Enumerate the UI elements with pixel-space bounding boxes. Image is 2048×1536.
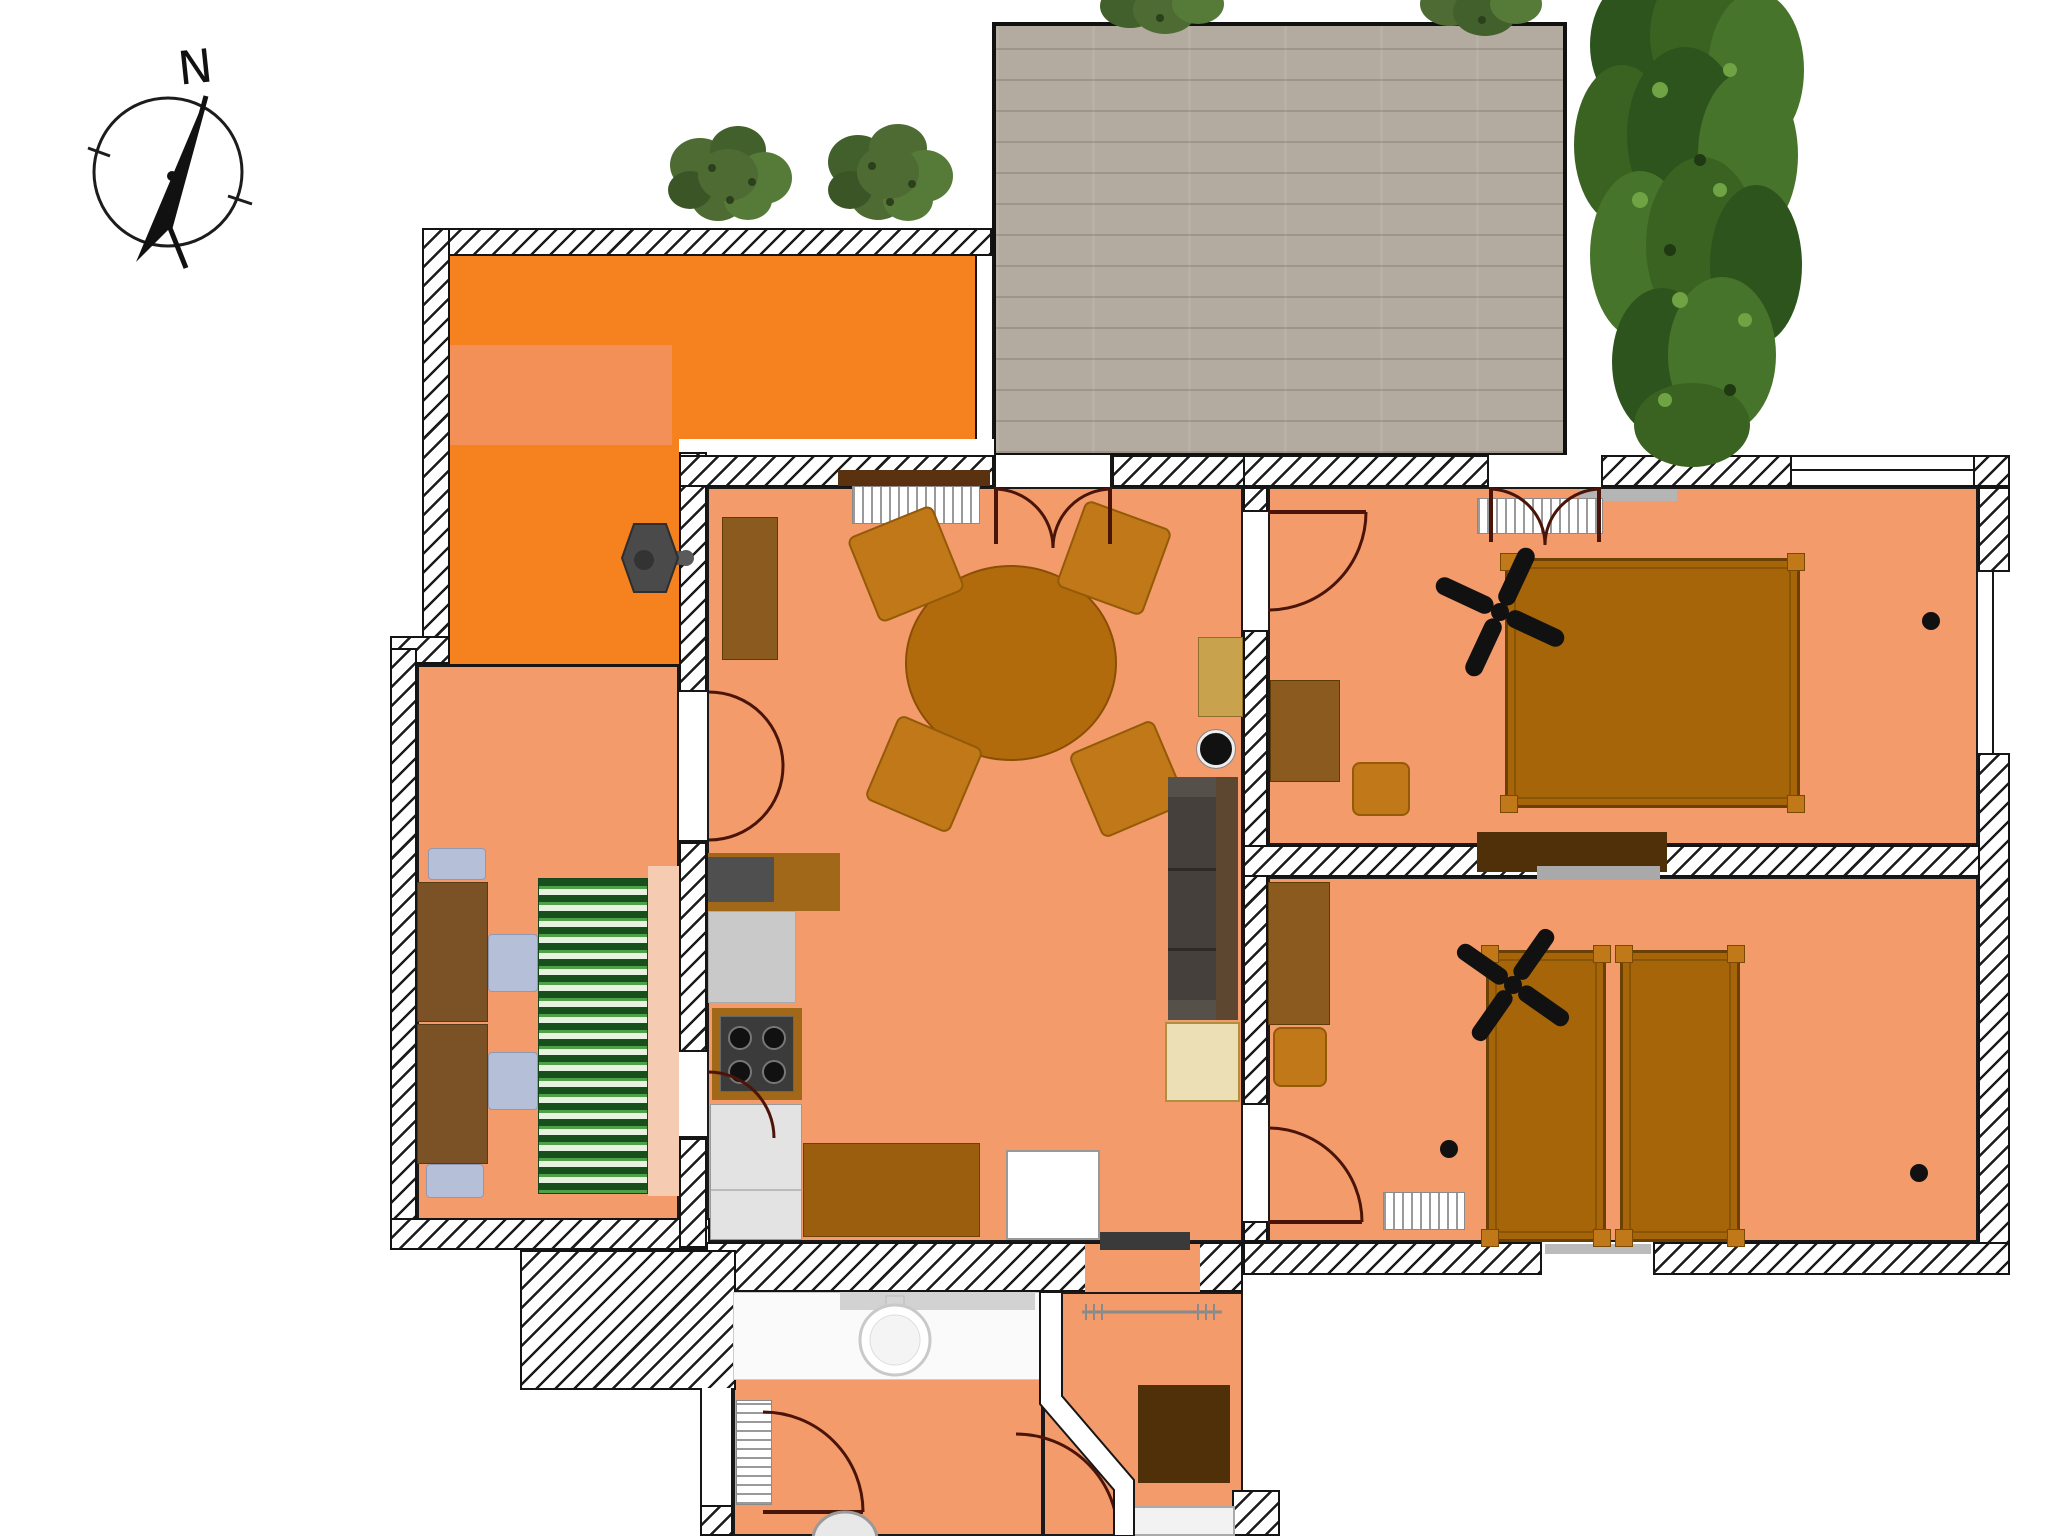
annex-floor-light-patch <box>450 345 672 445</box>
top-wall-window <box>1790 457 1975 485</box>
sofa-back-strip <box>1216 777 1238 1020</box>
compass-rose <box>88 96 252 268</box>
bed-post <box>1787 553 1805 571</box>
living-west-wall-mid <box>679 842 707 1052</box>
living-tall-cabinet <box>722 517 778 660</box>
sideboard-beige <box>1165 1022 1240 1102</box>
annex-top-wall <box>422 228 992 256</box>
sofa-cushion-line2 <box>1168 948 1216 951</box>
sofa-body <box>1168 777 1216 1020</box>
window-mullion <box>1792 469 1973 471</box>
bedroom2-desk <box>1268 882 1330 1025</box>
veranda-living-door-opening <box>679 690 707 842</box>
round-speaker-object <box>1197 730 1235 768</box>
floor-plan-canvas: N <box>0 0 2048 1536</box>
radiator-bathroom <box>736 1400 772 1505</box>
bed-post <box>1500 795 1518 813</box>
bed-post <box>1615 1229 1633 1247</box>
compass-tick-east <box>228 196 252 204</box>
living-west-wall-upper <box>679 452 707 692</box>
compass-circle <box>94 98 242 246</box>
side-table <box>1198 637 1243 717</box>
radiator-bedroom2 <box>1383 1192 1465 1230</box>
veranda-chair-cushion <box>488 1052 538 1110</box>
bedroom1-floor-lamp <box>1922 612 1940 630</box>
bush-icon <box>828 124 953 221</box>
compass-center-dot <box>167 171 177 181</box>
bedroom1-door-opening <box>1243 510 1268 632</box>
kitchen-table <box>803 1143 980 1237</box>
sofa-armrest-top <box>1168 777 1216 797</box>
kitchen-door-opening <box>679 1050 707 1138</box>
living-west-wall-lower <box>679 1138 707 1248</box>
sofa-armrest-bottom <box>1168 1000 1216 1020</box>
bedroom2-single-bed-right <box>1620 950 1740 1242</box>
patio-terrace <box>992 22 1567 457</box>
annex-east-wall-strip <box>975 252 994 455</box>
veranda-chair-cushion <box>426 1164 484 1198</box>
door-mat <box>1100 1232 1190 1250</box>
bedroom2-door-opening <box>1243 1103 1268 1223</box>
shower-tray <box>1123 1506 1235 1536</box>
veranda-green-mat <box>538 878 648 1194</box>
bed-inner-line <box>1629 959 1731 1233</box>
bedroom2-single-bed-left <box>1486 950 1606 1242</box>
white-desk <box>1006 1150 1100 1240</box>
veranda-north-line <box>417 664 679 667</box>
bedroom2-floor-lamp <box>1440 1140 1458 1158</box>
compass-north-label: N <box>175 38 215 95</box>
bed-post <box>1787 795 1805 813</box>
tall-tree-icon <box>1574 0 1804 467</box>
bed-post <box>1593 945 1611 963</box>
bedroom1-stool <box>1352 762 1410 816</box>
bedroom2-floor-lamp-2 <box>1910 1164 1928 1182</box>
bed-post <box>1500 553 1518 571</box>
bathroom-nw-wall-block <box>520 1250 736 1390</box>
stove-burner <box>762 1060 786 1084</box>
kitchen-worktop <box>708 911 796 1003</box>
small-room-cabinet <box>1138 1385 1230 1483</box>
veranda-pale-runner <box>648 866 679 1196</box>
compass-tick-west <box>88 148 110 156</box>
curtain-pelmet-living <box>838 470 990 486</box>
fridge-door-line <box>711 1189 801 1191</box>
hallway-passage-opening <box>1085 1244 1200 1292</box>
bed-post <box>1481 945 1499 963</box>
veranda-table-1 <box>417 882 488 1022</box>
bedroom1-double-bed <box>1505 558 1800 808</box>
bed-post <box>1727 1229 1745 1247</box>
bedroom1-desk <box>1270 680 1340 782</box>
bed-post <box>1481 1229 1499 1247</box>
compass-needle <box>136 96 206 262</box>
stove-burner <box>728 1060 752 1084</box>
bed-post <box>1727 945 1745 963</box>
bathroom-west-wall-stub <box>700 1505 733 1536</box>
bed-inner-line <box>1495 959 1597 1233</box>
annex-floor-left-column <box>450 445 679 668</box>
bathroom-west-window <box>700 1388 733 1505</box>
bed-post <box>1593 1229 1611 1247</box>
bed-inner-line <box>1514 567 1791 799</box>
shower-corner-wall <box>1232 1490 1280 1536</box>
annex-left-wall <box>422 228 450 660</box>
veranda-left-wall <box>390 648 417 1248</box>
sofa-cushion-line1 <box>1168 868 1216 871</box>
stove-burner <box>728 1026 752 1050</box>
window-mullion <box>1992 572 1994 753</box>
patio-french-door-opening <box>994 455 1112 487</box>
radiator-bedroom1 <box>1477 498 1603 534</box>
bed-post <box>1615 945 1633 963</box>
bedroom1-bench-tv <box>1537 866 1660 880</box>
veranda-bottom-wall <box>390 1218 710 1250</box>
living-top-wall-right <box>1112 455 1248 487</box>
kitchen-sink <box>708 857 774 902</box>
veranda-chair-cushion <box>428 848 486 880</box>
compass-needle-tail <box>170 96 206 268</box>
bathroom-shelf-strip <box>840 1292 1035 1310</box>
veranda-chair-cushion <box>488 934 538 992</box>
bush-icon <box>668 126 792 221</box>
bedroom2-chair <box>1273 1027 1327 1087</box>
bedroom1-french-door-opening <box>1487 455 1603 487</box>
veranda-table-2 <box>417 1024 488 1164</box>
right-wall-window <box>1978 570 2010 755</box>
fridge <box>710 1104 802 1240</box>
stove-burner <box>762 1026 786 1050</box>
